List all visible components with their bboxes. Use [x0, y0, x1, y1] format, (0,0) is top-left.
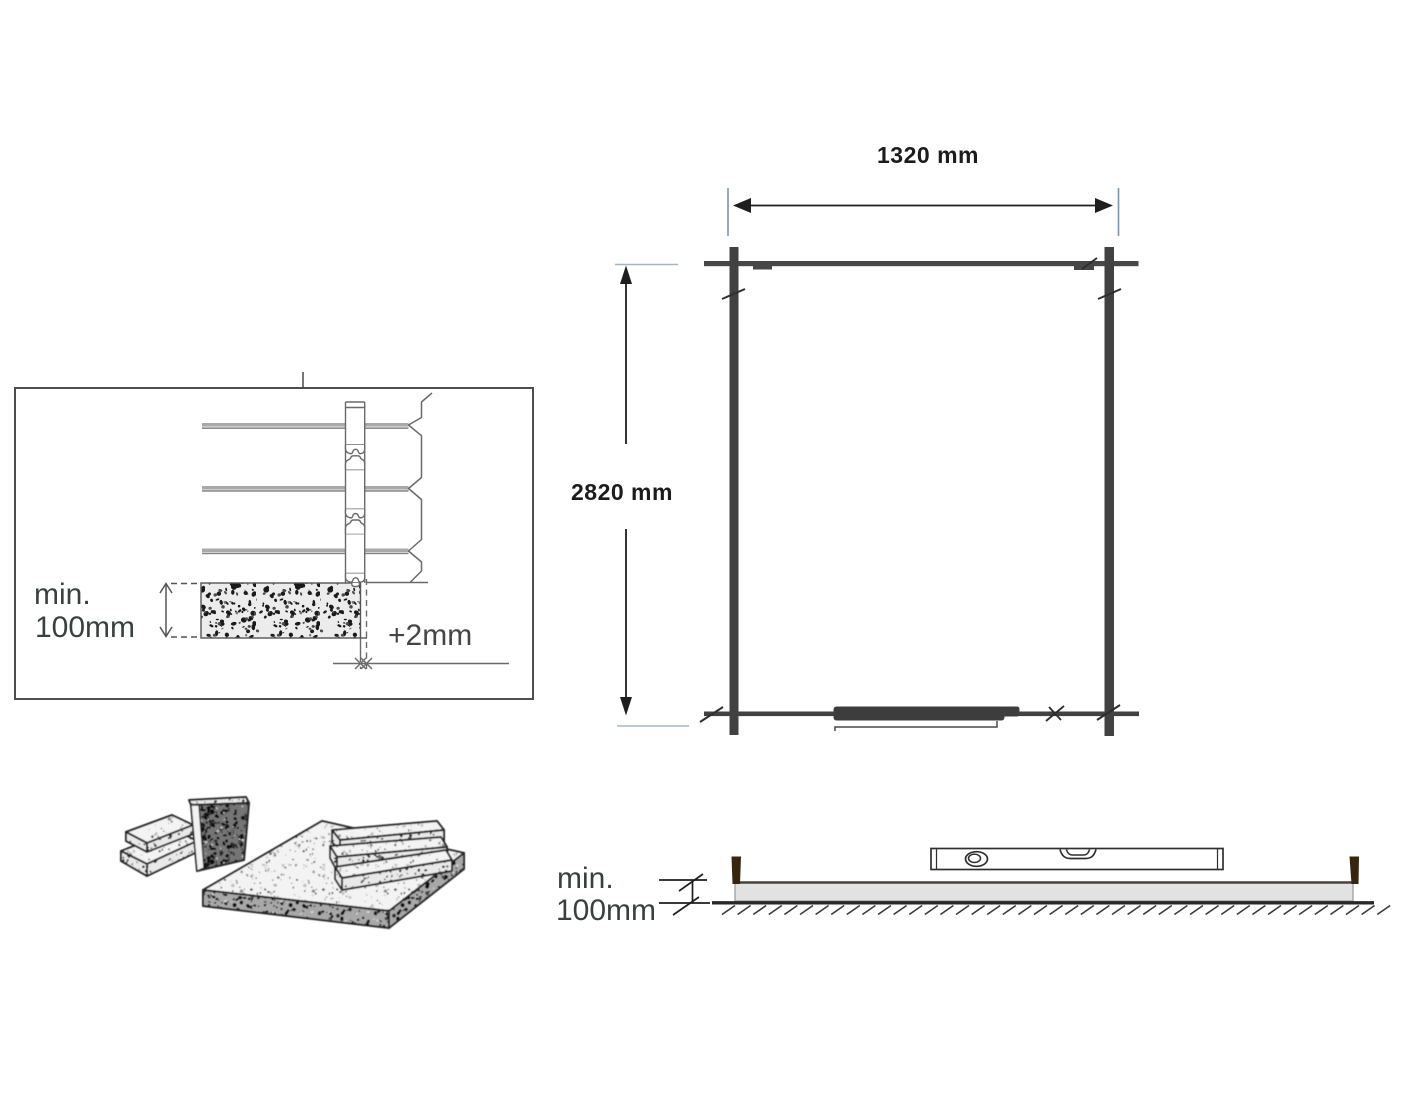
svg-text:min.: min.	[557, 862, 614, 895]
svg-text:1320 mm: 1320 mm	[877, 142, 979, 168]
svg-text:+2mm: +2mm	[388, 619, 472, 652]
svg-text:100mm: 100mm	[556, 894, 656, 927]
svg-text:min.: min.	[34, 578, 91, 611]
svg-text:2820 mm: 2820 mm	[571, 479, 673, 505]
svg-text:100mm: 100mm	[35, 611, 135, 644]
